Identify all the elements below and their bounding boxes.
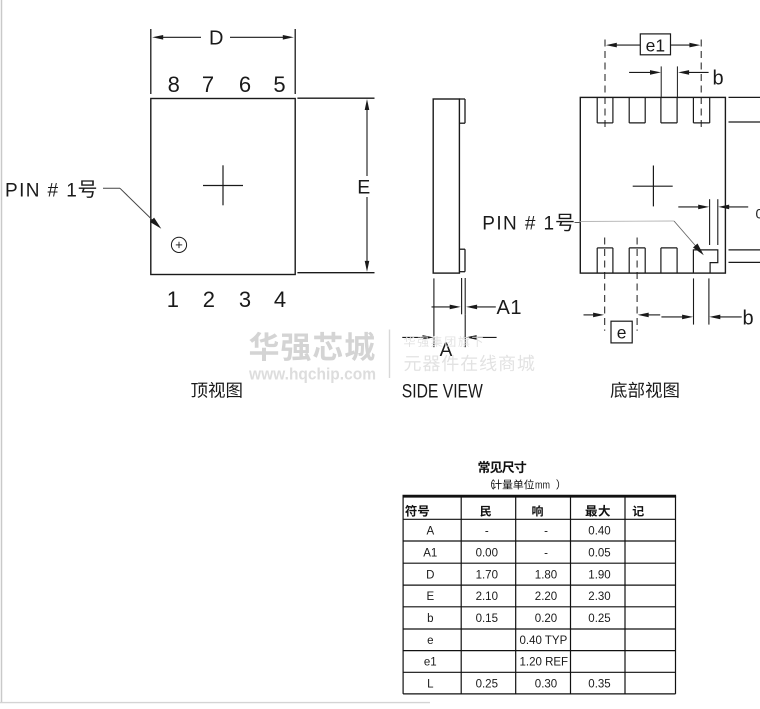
svg-text:0.25: 0.25 — [756, 206, 760, 222]
svg-text:0.30: 0.30 — [535, 678, 557, 690]
svg-text:2.10: 2.10 — [476, 591, 498, 603]
svg-text:1.80: 1.80 — [535, 569, 557, 581]
svg-text:b: b — [713, 68, 724, 90]
svg-text:4: 4 — [274, 287, 286, 312]
svg-text:0.25: 0.25 — [588, 613, 610, 625]
svg-text:-: - — [544, 525, 548, 537]
svg-text:www.hqchip.com: www.hqchip.com — [248, 365, 376, 384]
svg-text:3: 3 — [239, 287, 251, 312]
svg-text:b: b — [743, 308, 754, 330]
svg-text:L: L — [427, 678, 434, 690]
svg-text:0.35: 0.35 — [588, 678, 610, 690]
svg-text:7: 7 — [202, 72, 214, 97]
svg-text:A: A — [426, 525, 434, 537]
svg-text:PIN # 1: PIN # 1 — [5, 180, 78, 201]
svg-text:A1: A1 — [497, 297, 522, 319]
svg-text:A1: A1 — [423, 547, 437, 559]
svg-text:6: 6 — [239, 72, 251, 97]
svg-text:e: e — [427, 635, 433, 647]
svg-text:0.15: 0.15 — [476, 613, 498, 625]
svg-text:-: - — [544, 547, 548, 559]
svg-text:0.00: 0.00 — [476, 547, 498, 559]
svg-text:D: D — [426, 569, 434, 581]
svg-text:E: E — [357, 177, 370, 199]
svg-text:1.20 REF: 1.20 REF — [520, 657, 569, 669]
svg-text:mm: mm — [535, 480, 550, 492]
svg-text:1.70: 1.70 — [476, 569, 498, 581]
svg-text:8: 8 — [168, 72, 180, 97]
svg-text:D: D — [209, 28, 223, 50]
svg-text:SIDE VIEW: SIDE VIEW — [402, 381, 483, 402]
svg-text:2.30: 2.30 — [588, 591, 610, 603]
svg-text:e1: e1 — [424, 657, 437, 669]
svg-text:E: E — [426, 591, 434, 603]
svg-text:1.90: 1.90 — [588, 569, 610, 581]
svg-text:2.20: 2.20 — [535, 591, 557, 603]
svg-text:e1: e1 — [646, 36, 665, 56]
svg-text:1: 1 — [167, 287, 179, 312]
svg-text:5: 5 — [273, 72, 285, 97]
svg-text:0.25: 0.25 — [476, 678, 498, 690]
svg-text:2: 2 — [203, 287, 215, 312]
svg-text:0.05: 0.05 — [588, 547, 610, 559]
svg-text:b: b — [427, 613, 433, 625]
svg-text:-: - — [485, 525, 489, 537]
svg-text:PIN # 1: PIN # 1 — [482, 214, 555, 235]
svg-text:0.20: 0.20 — [535, 613, 557, 625]
svg-text:0.40: 0.40 — [588, 525, 610, 537]
svg-text:e: e — [617, 323, 627, 343]
svg-text:0.40 TYP: 0.40 TYP — [520, 635, 568, 647]
